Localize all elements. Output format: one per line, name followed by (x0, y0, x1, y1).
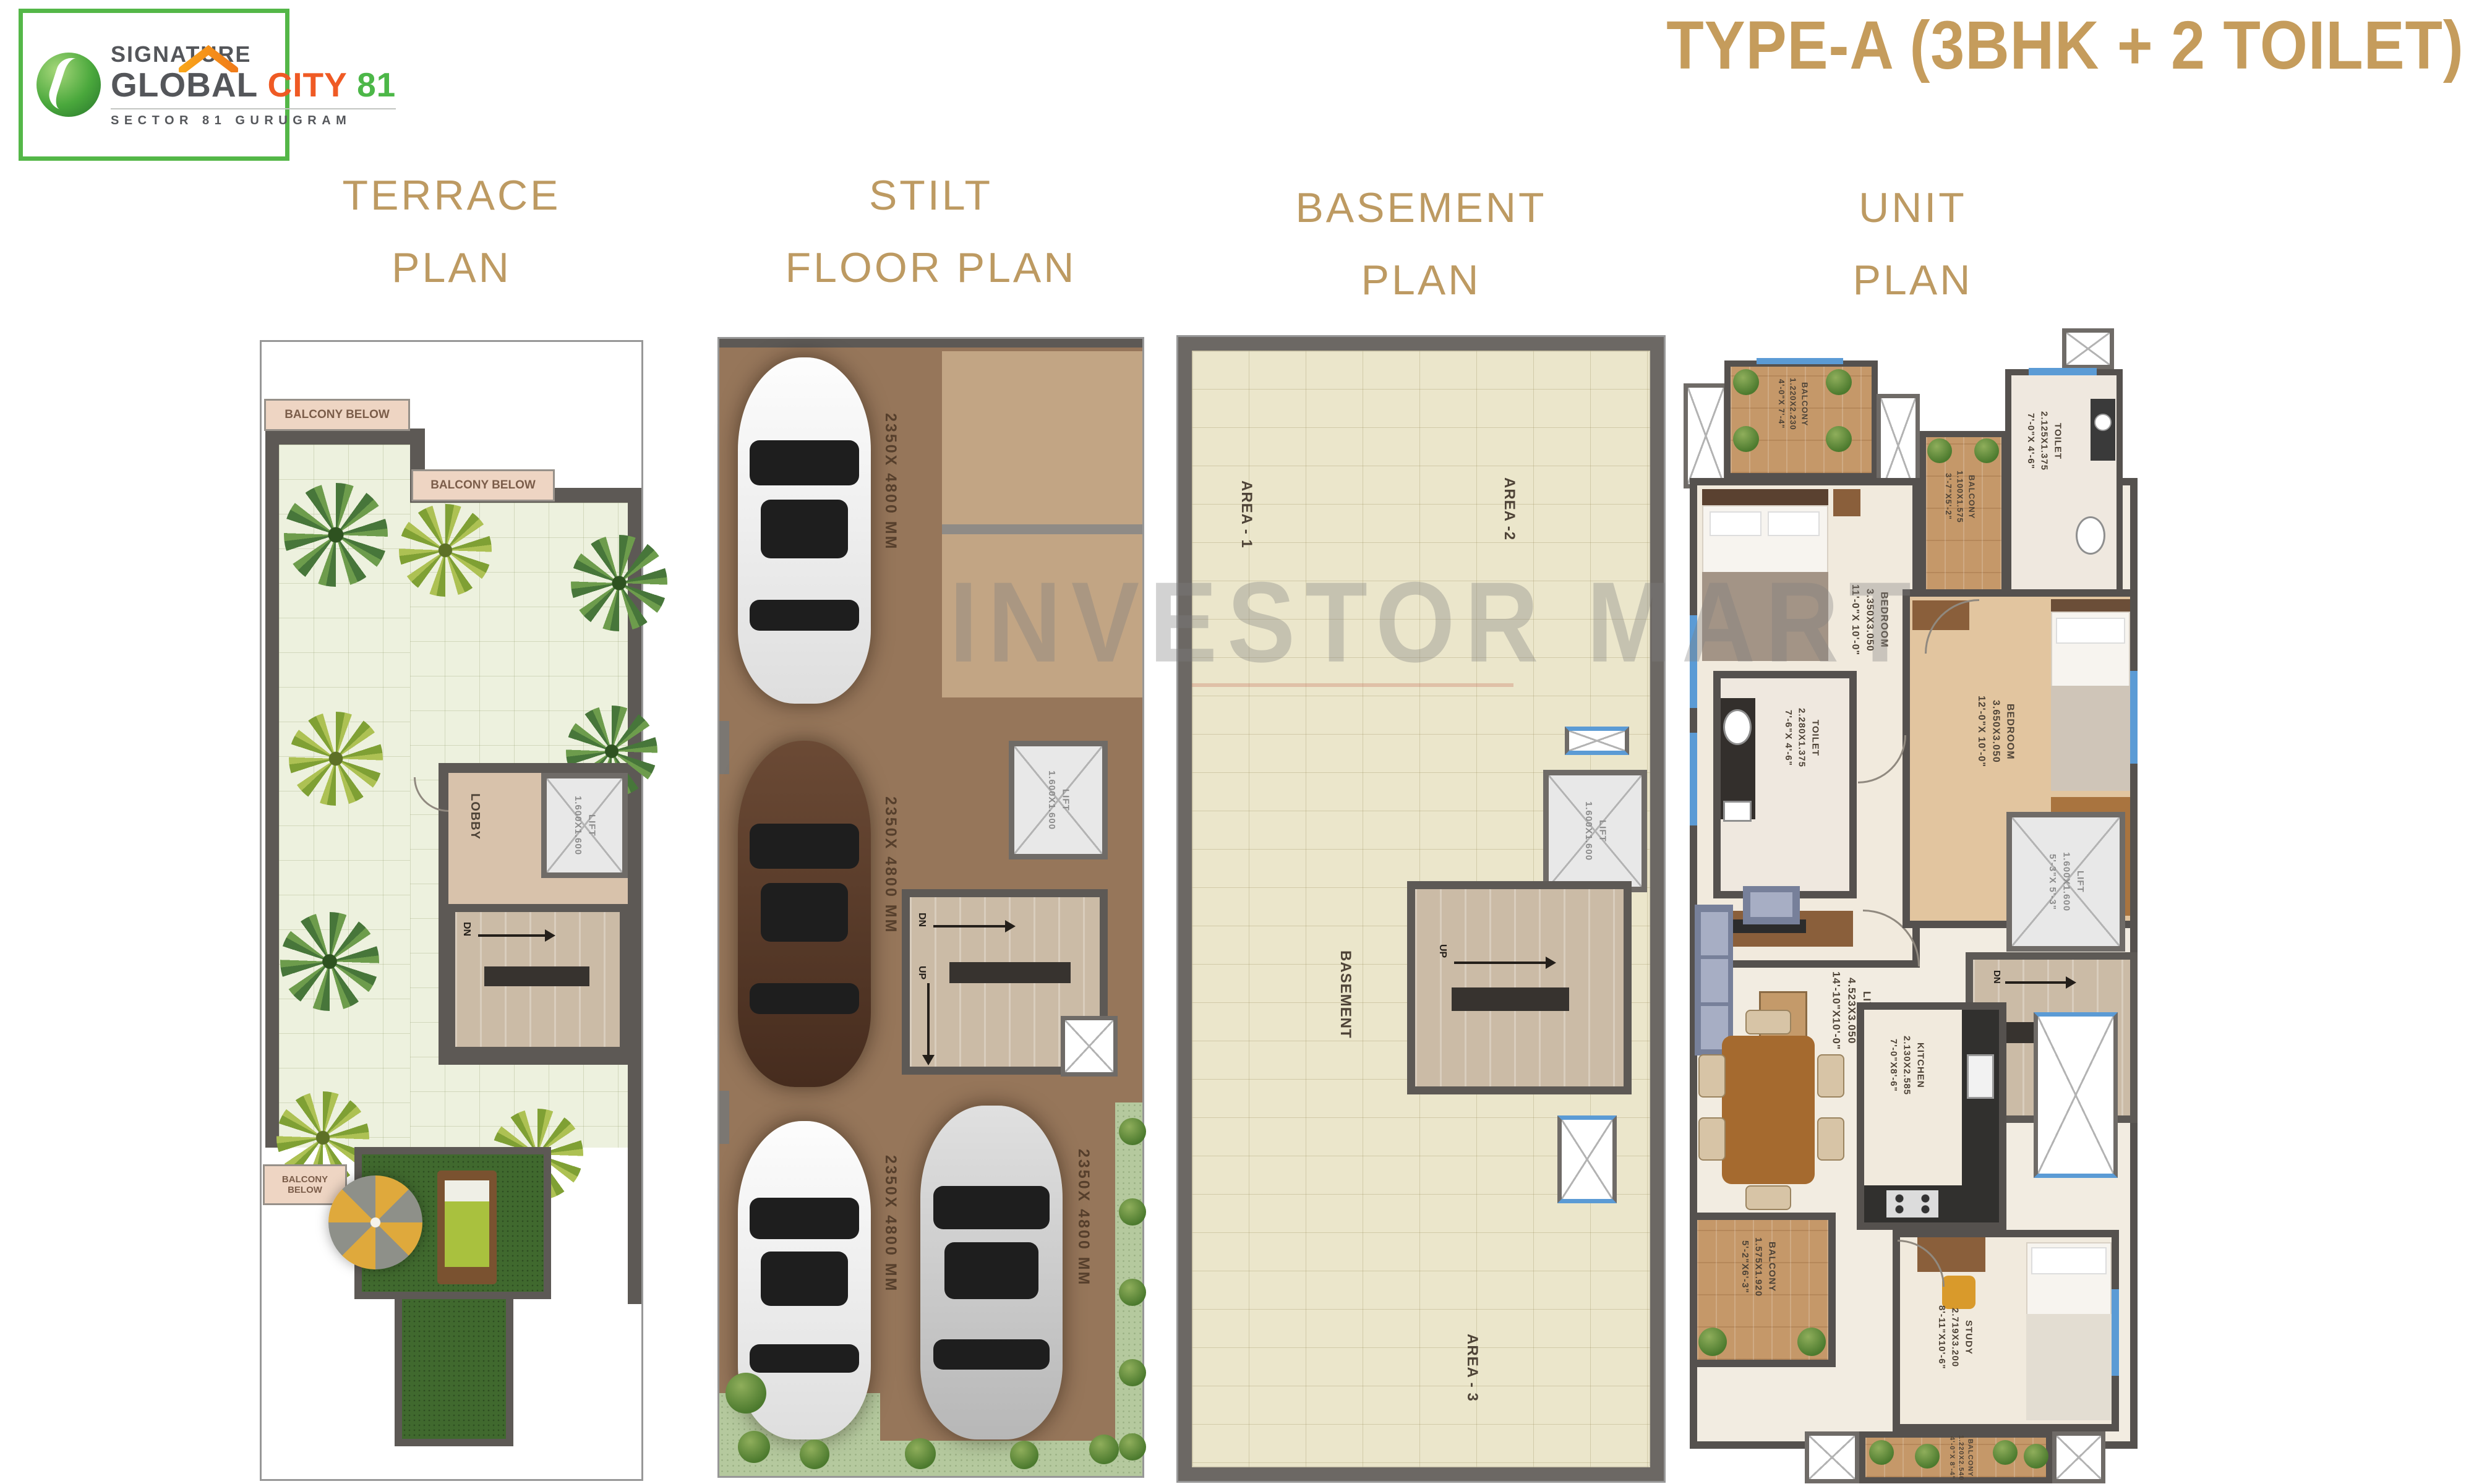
room-dim-ft: 4'-0"X 7'-4" (1775, 378, 1787, 430)
room-dim-ft: 8'-11"X10'-6" (1935, 1305, 1948, 1370)
lift-shaft (2034, 1012, 2118, 1178)
room-name: TOILET (1808, 708, 1822, 767)
stilt-plan: 2350X 4800 MM 2350X 4800 MM LIFT 1.600X1… (717, 337, 1144, 1478)
bush-icon (1974, 438, 1999, 463)
toilet-mid-label: TOILET 2.280X1.375 7'-6"X 4'-6" (1781, 708, 1821, 767)
basement-title-line1: BASEMENT (1178, 172, 1664, 244)
stilt-title-line1: STILT (717, 160, 1144, 232)
room-dim-ft: 12'-0"X 10'-0" (1974, 696, 1988, 767)
brand-city: CITY (267, 66, 346, 104)
unit-plan-title: UNIT PLAN (1682, 172, 2143, 317)
bush-icon (738, 1431, 770, 1463)
wall-stub (719, 1091, 729, 1144)
room-dim-m: 1.220X2.540 (1956, 1435, 1966, 1480)
room-dim-m: 2.130X2.585 (1900, 1036, 1914, 1095)
balcony-below-strip-1: BALCONY BELOW (264, 399, 410, 431)
area-2-label: AREA -2 (1498, 477, 1520, 540)
unit-title-line2: PLAN (1682, 244, 2143, 317)
lift-shaft (1684, 383, 1728, 488)
wall-stub (719, 721, 729, 774)
lounger-pillow (445, 1180, 489, 1201)
room-dim-ft: 5'-3"X 5'-3" (2045, 852, 2059, 911)
window-strip (2130, 671, 2138, 764)
bed-blanket (2051, 686, 2130, 791)
roof-icon (179, 45, 238, 72)
room-name: BALCONY (1799, 378, 1810, 430)
lift-shaft (1061, 1016, 1118, 1077)
brand-text-block: SIGNATURE GLOBAL CITY 81 SECTOR 81 GURUG… (111, 41, 396, 128)
hob (1886, 1190, 1938, 1217)
dining-chair (1745, 1010, 1791, 1034)
room-dim-m: 2.719X3.200 (1948, 1305, 1962, 1370)
dining-chair (1817, 1117, 1844, 1161)
car-top-view (920, 1106, 1063, 1439)
bed-headboard (1702, 489, 1828, 505)
study-label: STUDY 2.719X3.200 8'-11"X10'-6" (1935, 1305, 1975, 1370)
stilt-wall-top (719, 339, 1142, 348)
palm-plant-icon (289, 712, 383, 806)
basement-lift-room: LIFT 1.600X1.600 (1543, 770, 1647, 892)
bush-icon (726, 1373, 766, 1414)
room-dim-ft: 5'-2"X6'-3" (1738, 1237, 1752, 1297)
umbrella-icon (328, 1175, 422, 1269)
car-space-dim-4: 2350X 4800 MM (1074, 1149, 1092, 1286)
dining-chair (1698, 1054, 1726, 1098)
bed-pillow (2031, 1247, 2107, 1274)
brand-logo: SIGNATURE GLOBAL CITY 81 SECTOR 81 GURUG… (19, 9, 289, 161)
room-name: TOILET (2051, 411, 2065, 471)
bush-icon (1010, 1441, 1038, 1469)
dining-chair (1698, 1117, 1726, 1161)
car-windshield (750, 1198, 858, 1239)
stilt-plan-title: STILT FLOOR PLAN (717, 160, 1144, 304)
room-name: BALCONY (1966, 1435, 1975, 1480)
bush-icon (1119, 1198, 1146, 1226)
stilt-lift-label: LIFT 1.600X1.600 (1045, 770, 1072, 830)
palm-plant-icon (571, 535, 667, 631)
room-name: BEDROOM (2003, 696, 2017, 767)
dining-table (1722, 1036, 1815, 1184)
room-dim-m: 1.600X1.600 (2059, 852, 2073, 911)
car-sunroof (944, 1242, 1038, 1299)
basement-plan: AREA - 1 AREA -2 BASEMENT AREA - 3 LIFT … (1178, 337, 1664, 1481)
wash-basin (1723, 801, 1752, 822)
room-dim-ft: 7'-6"X 4'-6" (1781, 708, 1795, 767)
dn-arrow-icon (478, 934, 546, 937)
terrace-lift-room: LIFT 1.600X1.600 (541, 773, 628, 878)
car-rear-window (933, 1339, 1050, 1370)
bush-icon (1733, 369, 1759, 395)
bed-pillow (1768, 511, 1820, 536)
stair-landing (1452, 987, 1569, 1011)
dining-chair (1745, 1185, 1791, 1210)
terrace-title-line2: PLAN (260, 232, 643, 304)
page-title: TYPE-A (3BHK + 2 TOILET) (1666, 6, 2464, 85)
bush-icon (905, 1438, 936, 1469)
up-label: UP (1437, 944, 1448, 958)
lounger (437, 1171, 497, 1284)
bush-icon (1119, 1359, 1146, 1386)
lift-dim: 1.600X1.600 (1045, 770, 1059, 830)
toilet-top-label: TOILET 2.125X1.375 7'-0"X 4'-6" (2024, 411, 2064, 471)
car-rear-window (750, 983, 858, 1014)
brand-81: 81 (357, 66, 396, 104)
terrace-plan: BALCONY BELOW BALCONY BELOW LOBBY LIFT 1… (260, 340, 643, 1481)
wash-basin (2094, 414, 2112, 431)
car-windshield (933, 1186, 1050, 1229)
bush-icon (1826, 369, 1852, 395)
car-space-dim-1: 2350X 4800 MM (881, 413, 899, 550)
bush-icon (1869, 1440, 1894, 1465)
sofa-cushion (1701, 959, 1728, 1002)
room-dim-m: 3.650X3.050 (1988, 696, 2003, 767)
bush-icon (1698, 1328, 1727, 1356)
car-space-dim-2: 2350X 4800 MM (881, 796, 899, 934)
bedroom-right-label: BEDROOM 3.650X3.050 12'-0"X 10'-0" (1974, 696, 2018, 767)
side-table (1833, 489, 1860, 516)
floor-plan-sheet: SIGNATURE GLOBAL CITY 81 SECTOR 81 GURUG… (0, 0, 2474, 1484)
balcony-bottom-label: BALCONY 1.220X2.540 4'-0"X 8'-4" (1947, 1435, 1975, 1480)
room-name: STUDY (1962, 1305, 1975, 1370)
palm-plant-icon (399, 504, 492, 597)
lobby-wall-top (439, 763, 628, 773)
car-space-dim-3: 2350X 4800 MM (881, 1155, 899, 1292)
window-strip (2112, 1289, 2119, 1376)
basement-label: BASEMENT (1334, 950, 1356, 1039)
car-top-view (738, 741, 871, 1087)
kitchen-label: KITCHEN 2.130X2.585 7'-0"X8'-6" (1886, 1036, 1927, 1095)
room-name: BALCONY (1966, 471, 1977, 523)
wc-fixture (2076, 516, 2105, 555)
stair-landing (949, 962, 1071, 983)
dn-arrow-icon (2005, 981, 2067, 984)
brand-globe-icon (36, 53, 101, 117)
stilt-title-line2: FLOOR PLAN (717, 232, 1144, 304)
room-dim-m: 1.100X1.575 (1954, 471, 1966, 523)
terrace-plan-title: TERRACE PLAN (260, 160, 643, 304)
terrace-wall-left (265, 445, 279, 1148)
unit-lift-label: LIFT 1.600X1.600 5'-3"X 5'-3" (2045, 852, 2087, 911)
bush-icon (1733, 426, 1759, 452)
basement-title-line2: PLAN (1178, 244, 1664, 317)
dn-label: DN (916, 913, 927, 927)
balcony-mid-label: BALCONY 1.100X1.575 3'-7"X5'-2" (1942, 471, 1977, 523)
unit-plan: BALCONY 1.220X2.230 4'-0"X 7'-4" TOILET … (1682, 325, 2143, 1484)
bush-icon (1119, 1433, 1146, 1461)
sofa-cushion (1701, 912, 1728, 955)
dn-label: DN (1992, 970, 2002, 984)
stair-landing (484, 966, 589, 986)
brand-line2: GLOBAL CITY 81 (111, 67, 396, 103)
dining-chair (1817, 1054, 1844, 1098)
car-sunroof (761, 1252, 849, 1306)
unit-title-line1: UNIT (1682, 172, 2143, 244)
balcony-below-strip-2: BALCONY BELOW (411, 469, 555, 501)
lift-shaft (2062, 328, 2114, 369)
armchair-cushion (1750, 892, 1792, 917)
room-dim-ft: 14'-10"X10'-0" (1828, 971, 1844, 1050)
lift-dim: 1.600X1.600 (1582, 801, 1596, 861)
room-dim-m: 2.280X1.375 (1795, 708, 1808, 767)
lift-name: LIFT (1058, 770, 1072, 830)
bed-pillow (1710, 511, 1761, 536)
bush-icon (2024, 1444, 2048, 1469)
bush-icon (1119, 1118, 1146, 1145)
up-arrow-icon (927, 983, 930, 1056)
car-sunroof (761, 883, 849, 942)
room-name: KITCHEN (1914, 1036, 1927, 1095)
window-strip (1757, 358, 1843, 364)
car-rear-window (750, 600, 858, 631)
bush-icon (800, 1439, 829, 1469)
globe-swoosh-icon (45, 54, 91, 114)
terrace-title-line1: TERRACE (260, 160, 643, 232)
stilt-lift-room: LIFT 1.600X1.600 (1009, 741, 1108, 859)
area-3-label: AREA - 3 (1461, 1334, 1483, 1402)
brand-subtitle: SECTOR 81 GURUGRAM (111, 108, 396, 128)
room-dim-m: 1.575X1.920 (1752, 1237, 1765, 1297)
bush-icon (1826, 426, 1852, 452)
up-arrow-icon (1454, 962, 1547, 964)
car-rear-window (750, 1344, 858, 1373)
room-name: LIFT (2073, 852, 2087, 911)
bush-icon (1089, 1435, 1119, 1464)
kitchen-sink (1967, 1054, 1994, 1099)
study-chair (1942, 1276, 1975, 1309)
lift-shaft (1565, 727, 1629, 755)
room-dim-m: 1.220X2.230 (1787, 378, 1799, 430)
lobby-wall-bottom (439, 1055, 628, 1065)
room-dim-ft: 4'-0"X 8'-4" (1947, 1435, 1956, 1480)
car-top-view (738, 357, 871, 704)
balcony-dining-label: BALCONY 1.575X1.920 5'-2"X6'-3" (1738, 1237, 1778, 1297)
terrace-garden-lower (395, 1292, 513, 1446)
up-label: UP (916, 966, 927, 979)
dn-label: DN (461, 922, 472, 936)
lift-name: LIFT (584, 796, 599, 855)
room-dim-ft: 3'-7"X5'-2" (1942, 471, 1954, 523)
bed-headboard (2051, 599, 2130, 612)
car-windshield (750, 440, 858, 485)
bush-icon (1119, 1279, 1146, 1306)
balcony-top-label: BALCONY 1.220X2.230 4'-0"X 7'-4" (1775, 378, 1810, 430)
lift-name: LIFT (1595, 801, 1609, 861)
watermark: INVESTOR MART (949, 557, 1921, 688)
window-strip (1690, 733, 1697, 825)
lift-shaft (1805, 1431, 1859, 1483)
bed-pillow (2056, 618, 2125, 644)
area-1-label: AREA - 1 (1235, 480, 1257, 548)
bed-blanket (2026, 1314, 2112, 1420)
wc-fixture (1723, 709, 1752, 745)
room-name: BALCONY (1765, 1237, 1779, 1297)
room-dim-ft: 7'-0"X8'-6" (1886, 1036, 1900, 1095)
bush-icon (1915, 1444, 1940, 1469)
car-windshield (750, 824, 858, 869)
brand-line1: SIGNATURE (111, 41, 396, 67)
palm-plant-icon (280, 912, 379, 1011)
dn-arrow-icon (933, 925, 1006, 927)
terrace-lift-label: LIFT 1.600X1.600 (571, 796, 599, 855)
car-sunroof (761, 500, 849, 558)
bush-icon (1993, 1440, 2018, 1465)
palm-plant-icon (284, 483, 388, 587)
room-dim-ft: 7'-0"X 4'-6" (2024, 411, 2037, 471)
lobby-label: LOBBY (466, 793, 484, 840)
bush-icon (1797, 1328, 1826, 1356)
lift-shaft (1557, 1115, 1617, 1203)
basement-lift-label: LIFT 1.600X1.600 (1582, 801, 1609, 861)
stilt-band (942, 524, 1142, 534)
lift-shaft (2052, 1431, 2105, 1483)
room-dim-m: 2.125X1.375 (2037, 411, 2051, 471)
basement-plan-title: BASEMENT PLAN (1178, 172, 1664, 317)
window-strip (2029, 368, 2097, 375)
lift-dim: 1.600X1.600 (571, 796, 585, 855)
unit-lift-room: LIFT 1.600X1.600 5'-3"X 5'-3" (2006, 812, 2125, 952)
bush-icon (1927, 438, 1952, 463)
